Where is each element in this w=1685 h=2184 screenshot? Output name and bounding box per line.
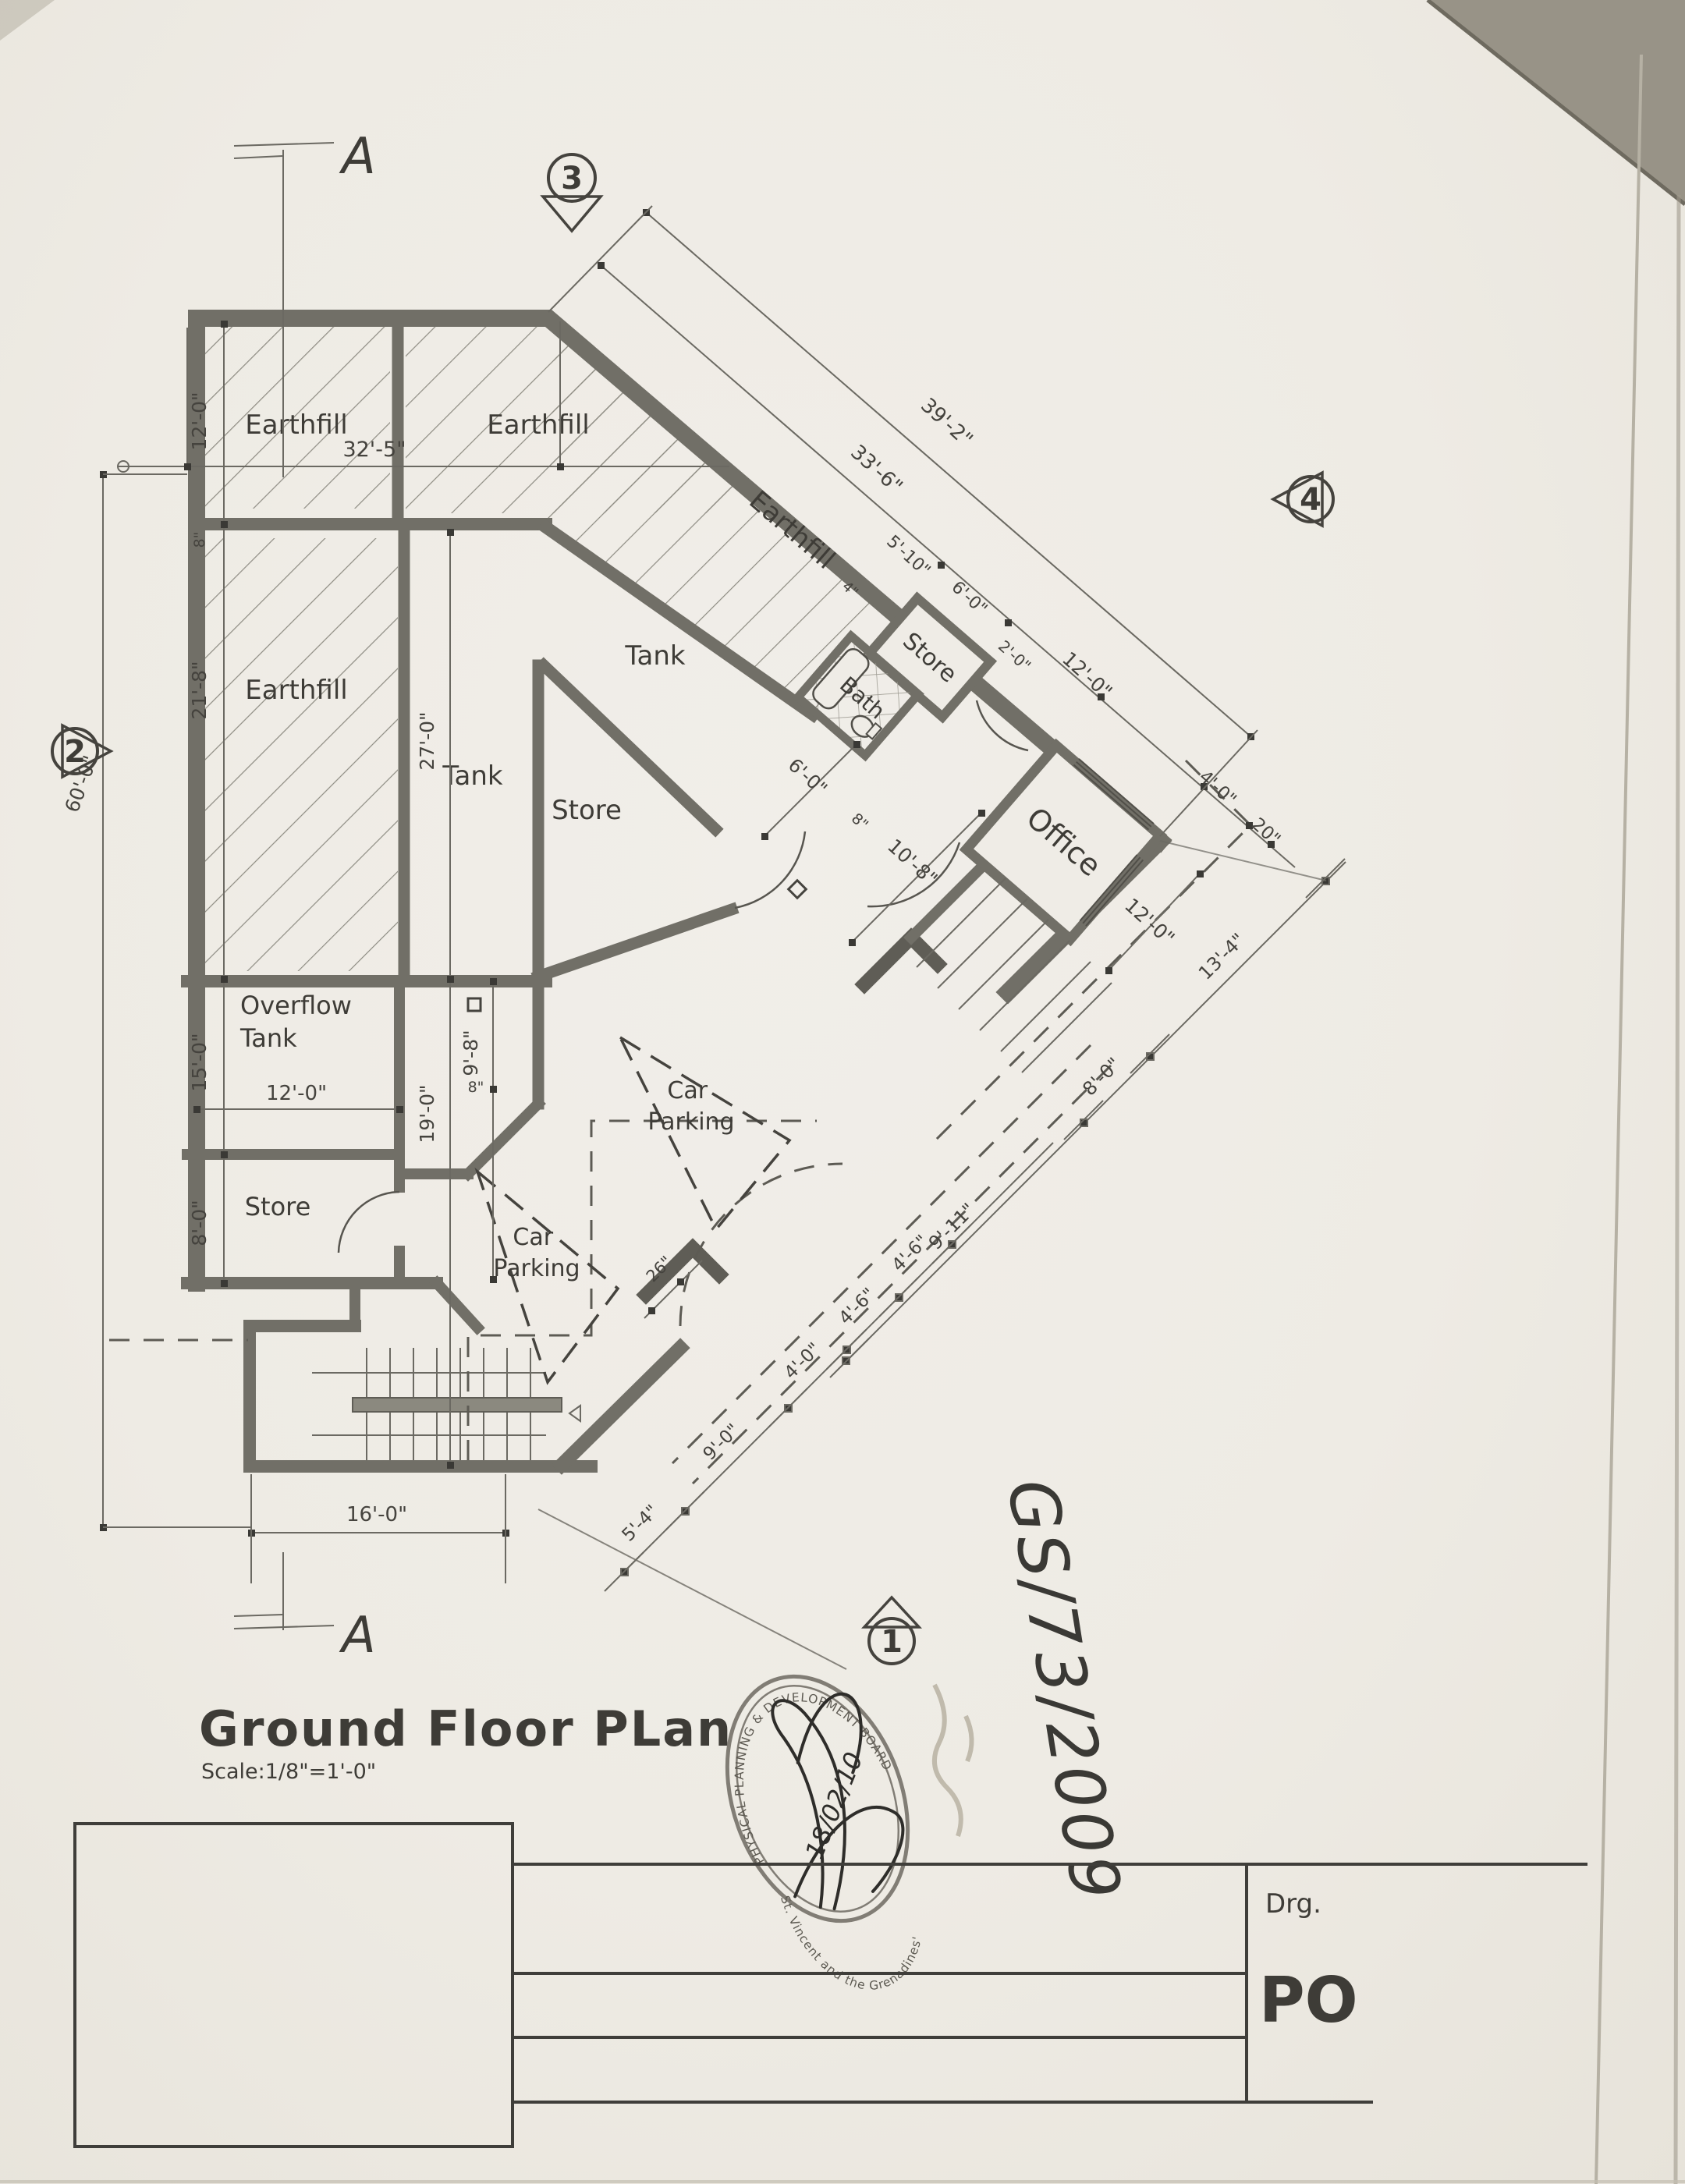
dim-store-door: 2'-0": [995, 636, 1034, 675]
floor-drain-2: [789, 881, 807, 899]
gate-swing-arc: [680, 1164, 842, 1326]
pencil-scribble: [935, 1685, 972, 1836]
wall-store-wedge-s: [538, 909, 732, 977]
drawing-scale: Scale:1/8"=1'-0": [201, 1760, 376, 1784]
tank-left-label: Tank: [442, 760, 503, 792]
dim-store-lower-height: 8'-0": [188, 1200, 211, 1246]
title-block-drg-label: Drg.: [1265, 1888, 1321, 1920]
car-parking-2-line2: Parking: [493, 1255, 580, 1282]
dim-wall8-a: 8": [191, 532, 208, 548]
dim-wing-inner: 33'-6": [846, 441, 906, 499]
earthfill-1-label: Earthfill: [245, 409, 347, 441]
grid-marker-4: 4: [1273, 473, 1333, 526]
floor-plan-drawing: Store Bath Office: [0, 0, 1685, 2184]
tank-main-label: Tank: [624, 640, 686, 672]
hatch-room3: [201, 538, 398, 971]
grid-marker-3: 3: [543, 154, 601, 231]
dim-room3-height: 21'-8": [188, 661, 211, 719]
dim-top-width: 32'-5": [342, 438, 406, 462]
floor-drain-1: [468, 998, 481, 1011]
approval-stamp: PHYSICAL PLANNING & DEVELOPMENT BOARD St…: [695, 1651, 967, 2019]
dim-office-se: 12'-0": [1120, 894, 1179, 950]
svg-text:Car Parking: Car Parking: [647, 1077, 734, 1136]
dim-corner-b: 20": [1247, 814, 1284, 850]
store-middle-label: Store: [552, 795, 622, 826]
dim-room1-height: 12'-0": [188, 392, 211, 450]
paper-crease: [1596, 55, 1641, 2184]
title-block: [75, 1824, 1587, 2147]
grid-marker-2: 2: [52, 725, 111, 777]
section-label-bottom: A: [339, 1607, 376, 1665]
title-block-drawing-number: PO: [1259, 1964, 1358, 2037]
dim-chain-outer-1: 8'-0": [1078, 1053, 1125, 1100]
staircase: [312, 1348, 580, 1460]
dim-wing-store-a: 5'-10": [882, 532, 934, 581]
svg-text:Overflow Tank: Overflow Tank: [239, 991, 360, 1053]
car-parking-1-line2: Parking: [647, 1108, 734, 1136]
driveway-edge-1: [672, 1045, 1091, 1463]
stair-rail: [353, 1398, 562, 1412]
dim-chain-outer-2: 13'-4": [1194, 929, 1250, 984]
dim-court-offset: 9'-8": [459, 1030, 482, 1076]
earthfill-2-label: Earthfill: [487, 409, 589, 441]
section-marker-bottom: A: [234, 1552, 376, 1665]
store-lower-door-arc: [339, 1192, 399, 1253]
grid-marker-1: 1: [864, 1597, 919, 1664]
grid-2-number: 2: [64, 734, 86, 770]
dim-wing-outer: 39'-2": [916, 394, 977, 452]
wall-stairwell: [250, 1326, 591, 1466]
car-parking-1-line1: Car: [667, 1077, 708, 1104]
grid-3-number: 3: [561, 161, 583, 197]
pier-upper: [864, 938, 938, 984]
overflow-tank-label-2: Tank: [239, 1023, 297, 1053]
dim-office-ne: 12'-0": [1058, 647, 1116, 704]
dim-wall8-b: 8": [468, 1079, 484, 1096]
dim-overflow-width: 12'-0": [266, 1082, 327, 1105]
car-parking-2: Car Parking: [477, 1172, 618, 1382]
store-lower-label: Store: [245, 1192, 311, 1221]
dim-stair-width: 16'-0": [346, 1503, 407, 1526]
car-parking-1: Car Parking: [620, 1037, 789, 1229]
drawing-title: Ground Floor PLan: [199, 1700, 733, 1757]
grid-4-number: 4: [1300, 482, 1321, 518]
wall-stair-jog: [355, 1283, 477, 1328]
section-label-top: A: [339, 128, 376, 186]
overflow-tank-label-1: Overflow: [240, 991, 352, 1020]
dim-court-height: 19'-0": [416, 1084, 438, 1143]
dim-pier-offset: 26": [643, 1253, 676, 1286]
car-parking-2-line1: Car: [513, 1224, 553, 1251]
dim-wall8-c: 8": [848, 810, 871, 833]
grid-1-number: 1: [881, 1624, 903, 1660]
earthfill-3-label: Earthfill: [245, 675, 347, 706]
dim-overflow-height: 15'-0": [188, 1033, 211, 1091]
title-block-left-box: [75, 1824, 513, 2147]
dim-tank-height: 27'-0": [416, 711, 438, 770]
scanned-floor-plan-page: Store Bath Office: [0, 0, 1685, 2184]
stair-direction-arrow: [569, 1406, 580, 1421]
svg-text:Car Parking: Car Parking: [493, 1224, 580, 1282]
file-number: GS/73/2009: [991, 1474, 1135, 1908]
